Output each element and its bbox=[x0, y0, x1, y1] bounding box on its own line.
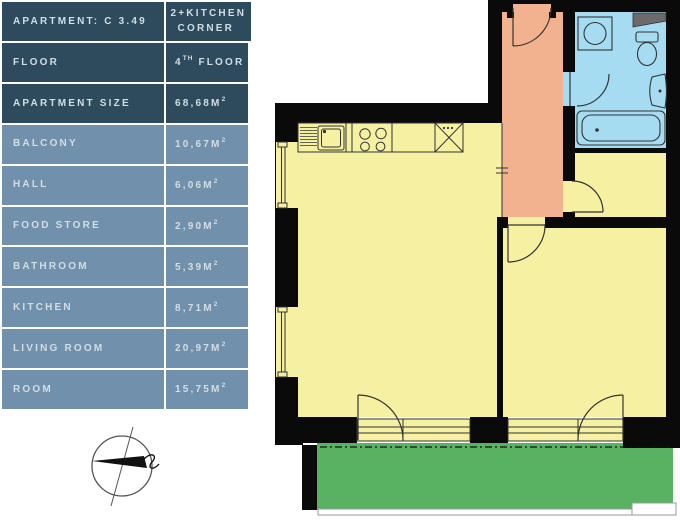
window-cap bbox=[278, 372, 287, 377]
balcony-door-window-right bbox=[508, 419, 623, 441]
floor-plan bbox=[0, 0, 680, 525]
window-cap bbox=[278, 307, 287, 312]
compass-needle bbox=[92, 456, 147, 468]
food-store-door-opening bbox=[563, 181, 575, 212]
room-balcony bbox=[317, 443, 673, 510]
room-kitchen-living bbox=[298, 123, 497, 417]
bathroom-door-opening bbox=[563, 72, 575, 106]
room-door-opening bbox=[508, 217, 545, 228]
window-cap bbox=[278, 203, 287, 208]
window-cap bbox=[278, 142, 287, 147]
room-hall bbox=[502, 12, 563, 217]
entrance-opening bbox=[513, 4, 551, 12]
window-recess bbox=[276, 142, 298, 208]
room-bathroom bbox=[575, 10, 666, 148]
faucet-icon bbox=[323, 130, 326, 133]
room-food-store bbox=[575, 153, 666, 217]
page: { "apartment_table": { "colors": { "head… bbox=[0, 0, 680, 525]
dish-drainer bbox=[300, 128, 317, 146]
balcony-door-window-left bbox=[357, 419, 470, 441]
north-arrow-compass bbox=[92, 427, 159, 506]
window-recess bbox=[276, 307, 298, 377]
